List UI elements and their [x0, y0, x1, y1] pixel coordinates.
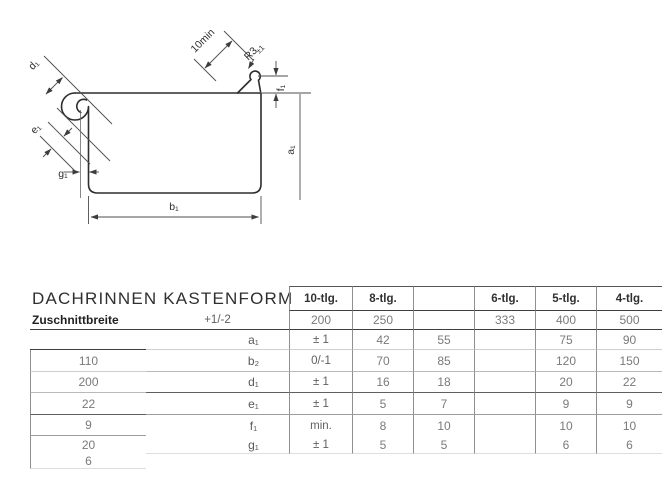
column-header-empty — [413, 286, 474, 311]
table-cell — [474, 350, 535, 372]
table-cell: 42 — [352, 330, 413, 350]
flap-min-label: 10min — [189, 26, 218, 55]
table-cell: 110 — [30, 350, 146, 372]
table-cell: 6 — [535, 436, 596, 454]
table-cell — [146, 415, 218, 436]
f1-label: f₁ — [275, 84, 287, 91]
table-cell — [146, 436, 218, 454]
dimension-table: DACHRINNEN KASTENFORM 10-tlg. 8-tlg. 6-t… — [30, 286, 662, 469]
row-tolerance: ± 1 — [289, 393, 352, 415]
table-cell — [474, 436, 535, 454]
e1-ext-line-b — [40, 136, 75, 171]
table-cell: 9 — [30, 415, 146, 436]
column-header-4tlg: 4-tlg. — [596, 286, 662, 311]
title-underline-filler — [30, 330, 146, 350]
row-tolerance: 0/-1 — [289, 350, 352, 372]
table-cell: 75 — [535, 330, 596, 350]
table-cell — [474, 393, 535, 415]
table-cell: 400 — [535, 311, 596, 330]
e1-arrow-left — [43, 149, 51, 157]
flap-ext-line-a — [194, 59, 216, 81]
b1-label: b₁ — [169, 201, 179, 213]
table-cell: 85 — [413, 350, 474, 372]
table-cell: 333 — [474, 311, 535, 330]
table-cell: 7 — [413, 393, 474, 415]
table-cell: 200 — [289, 311, 352, 330]
e1-ext-line-a — [48, 122, 90, 164]
table-cell: 500 — [596, 311, 662, 330]
table-cell: 5 — [352, 436, 413, 454]
table-cell — [474, 415, 535, 436]
d1-dimension-line — [46, 78, 63, 95]
table-cell: 5 — [352, 393, 413, 415]
table-cell: 20 — [535, 372, 596, 393]
table-cell: 10 — [413, 415, 474, 436]
table-cell: 6 — [596, 436, 662, 454]
table-cell: 20 — [30, 436, 146, 454]
row-symbol-d1: d₁ — [218, 372, 289, 393]
table-cell: 9 — [535, 393, 596, 415]
row-tolerance: min. — [289, 415, 352, 436]
table-cell — [146, 350, 218, 372]
table-cell: 6 — [30, 454, 146, 469]
column-header-5tlg: 5-tlg. — [535, 286, 596, 311]
table-cell: 150 — [596, 350, 662, 372]
zuschnittbreite-tolerance: +1/-2 — [146, 311, 289, 330]
table-cell: 55 — [413, 330, 474, 350]
table-cell: 18 — [413, 372, 474, 393]
tangent-line-upper — [44, 56, 112, 124]
g1-label: g₁ — [58, 168, 68, 180]
column-header-8tlg: 8-tlg. — [352, 286, 413, 311]
column-header-6tlg: 6-tlg. — [474, 286, 535, 311]
row-tolerance: ± 1 — [289, 436, 352, 454]
table-cell: 9 — [596, 393, 662, 415]
table-cell — [146, 330, 218, 350]
table-cell: 200 — [30, 372, 146, 393]
table-cell — [474, 372, 535, 393]
a1-label: a₁ — [285, 145, 297, 155]
table-title: DACHRINNEN KASTENFORM — [30, 286, 289, 311]
table-cell: 10 — [596, 415, 662, 436]
row-symbol-a1: a₁ — [218, 330, 289, 350]
row-tolerance: ± 1 — [289, 372, 352, 393]
row-symbol-g1: g₁ — [218, 436, 289, 454]
e1-label: e₁ — [28, 121, 43, 136]
table-cell: 8 — [352, 415, 413, 436]
row-symbol-f1: f₁ — [218, 415, 289, 436]
row-label-zuschnittbreite: Zuschnittbreite — [30, 311, 146, 330]
row-tolerance: ± 1 — [289, 330, 352, 350]
table-cell: 70 — [352, 350, 413, 372]
table-cell: 10 — [535, 415, 596, 436]
table-cell: 120 — [535, 350, 596, 372]
flap-dimension-line — [205, 41, 232, 68]
e1-arrow-right — [64, 128, 72, 136]
table-cell: 5 — [413, 436, 474, 454]
gutter-cross-section-diagram: d₁ e₁ g₁ b₁ a₁ f₁ 10min R3 ±1 — [0, 0, 670, 270]
table-cell: 90 — [596, 330, 662, 350]
spec-sheet: d₁ e₁ g₁ b₁ a₁ f₁ 10min R3 ±1 DACHRINNEN… — [0, 0, 670, 491]
table-cell: 22 — [596, 372, 662, 393]
front-water-flap — [238, 71, 261, 93]
table-cell — [146, 372, 218, 393]
table-cell — [146, 393, 218, 415]
table-cell: 250 — [352, 311, 413, 330]
table-cell: 22 — [30, 393, 146, 415]
column-header-10tlg: 10-tlg. — [289, 286, 352, 311]
bead-inner-spiral — [77, 99, 87, 112]
row-symbol-b2: b₂ — [218, 350, 289, 372]
table-cell — [413, 311, 474, 330]
table-cell — [474, 330, 535, 350]
row-symbol-e1: e₁ — [218, 393, 289, 415]
d1-label: d₁ — [26, 57, 41, 72]
table-cell: 16 — [352, 372, 413, 393]
